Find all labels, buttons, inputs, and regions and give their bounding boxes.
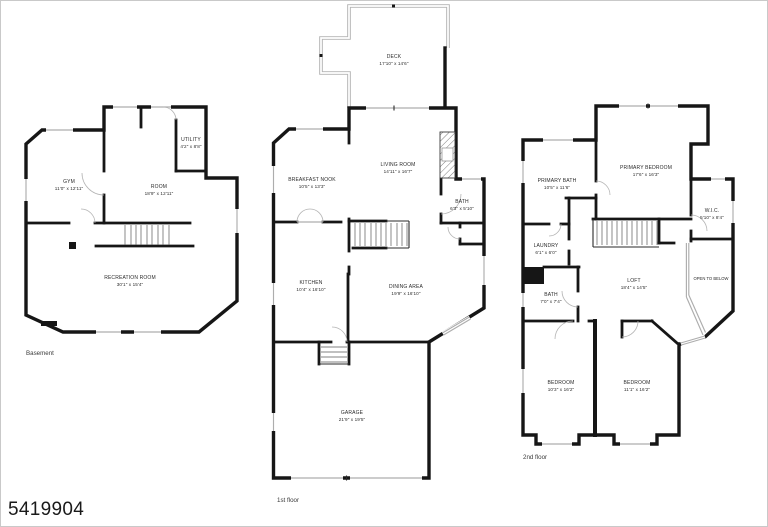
room-label-bath1-name: BATH [455, 199, 469, 205]
room-label-bath2-name: BATH [544, 292, 558, 298]
room-label-gym-dims: 11'0" x 12'11" [55, 186, 84, 191]
room-label-kitchen-name: KITCHEN [300, 280, 323, 286]
floorplan-basement: GYM 11'0" x 12'11" ROOM 18'9" x 12'11" U… [26, 107, 237, 357]
second-floor-exterior-walls [523, 106, 733, 444]
floorplan-2nd-floor: PRIMARY BATH 10'5" x 11'6" PRIMARY BEDRO… [523, 104, 733, 462]
room-label-living-room-dims: 14'11" x 16'7" [384, 169, 413, 174]
room-label-dining-area-name: DINING AREA [389, 284, 423, 290]
floorplan-page: GYM 11'0" x 12'11" ROOM 18'9" x 12'11" U… [0, 0, 768, 527]
deck-railing [320, 5, 449, 109]
floor-label-basement: Basement [26, 350, 54, 357]
room-label-recreation-name: RECREATION ROOM [104, 275, 156, 281]
room-label-primary-bedroom-name: PRIMARY BEDROOM [620, 165, 672, 171]
floor-label-1st-floor: 1st floor [277, 497, 299, 504]
floorplan-canvas: GYM 11'0" x 12'11" ROOM 18'9" x 12'11" U… [1, 1, 768, 527]
room-label-gym-name: GYM [63, 179, 75, 185]
room-label-utility-dims: 4'2" x 8'8" [180, 144, 201, 149]
chimney-block [523, 267, 544, 284]
room-label-garage-name: GARAGE [341, 410, 364, 416]
room-label-bedroom-right-name: BEDROOM [624, 380, 651, 386]
floor-label-2nd-floor: 2nd floor [523, 454, 547, 461]
room-label-deck-name: DECK [387, 54, 402, 60]
basement-exterior-walls [26, 107, 237, 332]
room-label-open-to-below: OPEN TO BELOW [694, 276, 729, 281]
room-label-bedroom-left-name: BEDROOM [548, 380, 575, 386]
room-label-room-name: ROOM [151, 184, 167, 190]
room-label-primary-bath-name: PRIMARY BATH [538, 178, 577, 184]
fireplace [440, 132, 455, 178]
room-label-dining-area-dims: 19'9" x 16'10" [391, 291, 420, 296]
room-label-wic-dims: 5'10" x 8'4" [700, 215, 724, 220]
room-label-loft-name: LOFT [627, 278, 640, 284]
room-label-kitchen-dims: 10'4" x 16'10" [296, 287, 325, 292]
hearth-block [41, 321, 57, 326]
room-label-laundry-name: LAUNDRY [534, 243, 559, 249]
room-label-bedroom-right-dims: 11'1" x 16'2" [624, 387, 650, 392]
listing-photo-id: 5419904 [8, 499, 84, 521]
room-label-room-dims: 18'9" x 12'11" [145, 191, 174, 196]
room-label-deck-dims: 17'10" x 14'6" [379, 61, 408, 66]
room-label-primary-bath-dims: 10'5" x 11'6" [544, 185, 570, 190]
floorplan-1st-floor: DECK 17'10" x 14'6" BREAKFAST NOOK 10'5"… [274, 5, 485, 505]
room-label-primary-bedroom-dims: 17'6" x 16'3" [633, 172, 660, 177]
room-label-bedroom-left-dims: 10'3" x 16'2" [548, 387, 575, 392]
room-label-garage-dims: 21'9" x 19'5" [339, 417, 366, 422]
room-label-breakfast-nook-dims: 10'5" x 13'3" [299, 184, 326, 189]
room-label-living-room-name: LIVING ROOM [381, 162, 416, 168]
room-label-loft-dims: 18'4" x 14'5" [621, 285, 648, 290]
room-label-bath2-dims: 7'0" x 7'4" [540, 299, 561, 304]
room-label-breakfast-nook-name: BREAKFAST NOOK [288, 177, 336, 183]
room-label-bath1-dims: 6'3" x 5'10" [450, 206, 474, 211]
room-label-utility-name: UTILITY [181, 137, 201, 143]
room-label-wic-name: W.I.C. [705, 208, 720, 214]
support-post [69, 242, 76, 249]
room-label-recreation-dims: 30'1" x 15'4" [117, 282, 144, 287]
room-label-laundry-dims: 6'1" x 6'0" [535, 250, 556, 255]
